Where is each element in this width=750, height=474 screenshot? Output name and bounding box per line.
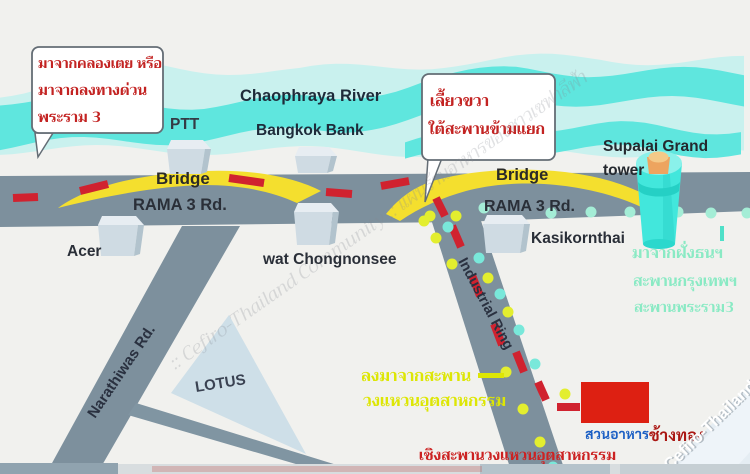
svg-text:tower: tower xyxy=(603,162,644,179)
svg-text:PTT: PTT xyxy=(170,116,200,133)
svg-text:wat Chongnonsee: wat Chongnonsee xyxy=(262,251,397,268)
svg-text:Bangkok Bank: Bangkok Bank xyxy=(256,122,364,139)
svg-text:RAMA 3 Rd.: RAMA 3 Rd. xyxy=(484,198,575,215)
svg-text:Chaophraya River: Chaophraya River xyxy=(240,87,382,105)
svg-text:Acer: Acer xyxy=(67,243,101,260)
svg-text:Kasikornthai: Kasikornthai xyxy=(531,230,625,247)
svg-text:RAMA 3 Rd.: RAMA 3 Rd. xyxy=(133,196,227,214)
svg-text:Bridge: Bridge xyxy=(496,166,548,184)
svg-text:Supalai Grand: Supalai Grand xyxy=(603,138,708,155)
svg-text:Bridge: Bridge xyxy=(156,169,210,188)
